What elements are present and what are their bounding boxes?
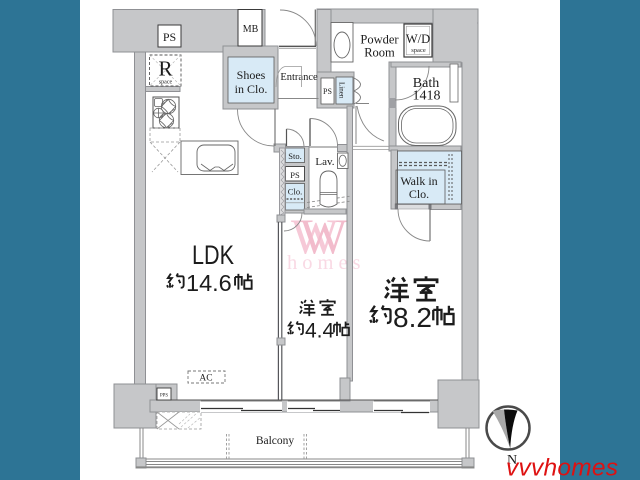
svg-text:PS: PS [323, 87, 332, 96]
svg-text:Linen: Linen [338, 82, 346, 99]
svg-text:Powder: Powder [360, 33, 399, 47]
svg-text:Lav.: Lav. [315, 156, 334, 168]
svg-text:8.2: 8.2 [393, 302, 432, 333]
svg-text:Balcony: Balcony [256, 435, 295, 447]
svg-text:PPS: PPS [160, 394, 168, 399]
svg-text:space: space [159, 80, 173, 86]
svg-text:1418: 1418 [413, 89, 441, 104]
svg-text:R: R [158, 57, 172, 81]
svg-text:Room: Room [364, 46, 395, 60]
svg-text:LDK: LDK [192, 240, 234, 270]
svg-text:Sto.: Sto. [288, 151, 301, 161]
svg-text:PS: PS [290, 170, 300, 180]
svg-text:homes: homes [287, 252, 366, 274]
svg-text:14.6: 14.6 [186, 270, 232, 296]
svg-text:AC: AC [199, 374, 212, 384]
svg-text:space: space [411, 47, 426, 54]
svg-text:MB: MB [243, 24, 259, 35]
svg-text:Walk in: Walk in [400, 174, 437, 188]
svg-text:4.4: 4.4 [305, 320, 335, 343]
svg-text:Entrance: Entrance [280, 72, 318, 83]
svg-text:Clo.: Clo. [288, 187, 302, 197]
svg-text:PS: PS [163, 30, 176, 44]
svg-text:vvvhomes: vvvhomes [506, 455, 618, 480]
svg-text:W/D: W/D [406, 32, 430, 46]
svg-text:Shoes: Shoes [237, 68, 266, 82]
svg-text:in Clo.: in Clo. [235, 82, 268, 96]
svg-text:Clo.: Clo. [409, 187, 429, 201]
